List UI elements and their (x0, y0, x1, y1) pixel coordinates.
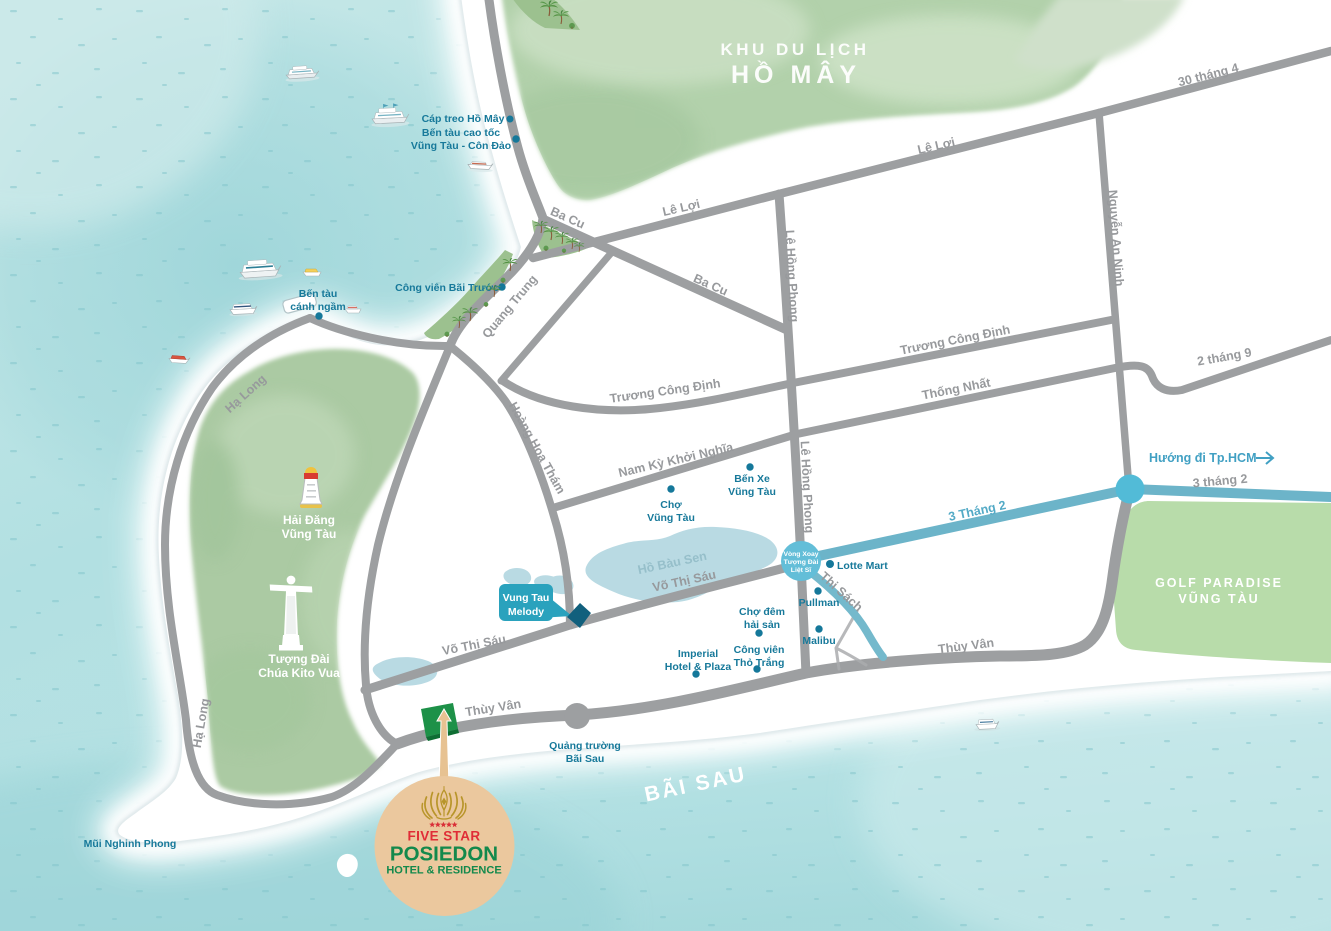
svg-text:HỒ MÂY: HỒ MÂY (731, 59, 861, 89)
svg-text:Pullman: Pullman (799, 597, 840, 609)
svg-text:Bến Xe: Bến Xe (734, 473, 770, 485)
svg-text:Tượng Đài: Tượng Đài (268, 652, 329, 666)
svg-text:Hải Đăng: Hải Đăng (283, 513, 335, 527)
svg-text:Bến tàu cao tốc: Bến tàu cao tốc (422, 127, 500, 139)
svg-text:HOTEL & RESIDENCE: HOTEL & RESIDENCE (386, 865, 501, 877)
svg-text:Bãi Sau: Bãi Sau (566, 753, 605, 765)
svg-text:Imperial: Imperial (678, 648, 718, 660)
svg-text:Công viên: Công viên (734, 644, 785, 656)
svg-text:Vũng Tàu: Vũng Tàu (282, 527, 337, 541)
svg-text:Malibu: Malibu (802, 635, 835, 647)
svg-text:Mũi Nghinh Phong: Mũi Nghinh Phong (84, 838, 177, 850)
svg-text:VŨNG TÀU: VŨNG TÀU (1178, 591, 1259, 606)
svg-text:Vòng Xoay: Vòng Xoay (783, 551, 818, 558)
svg-text:hải sản: hải sản (744, 619, 780, 631)
svg-text:Tượng Đài: Tượng Đài (784, 559, 819, 566)
svg-text:Quảng trường: Quảng trường (549, 740, 621, 752)
svg-text:Vũng Tàu: Vũng Tàu (647, 512, 695, 524)
svg-text:GOLF PARADISE: GOLF PARADISE (1155, 576, 1283, 590)
svg-text:Vũng Tàu: Vũng Tàu (728, 486, 776, 498)
svg-text:Chúa Kito Vua: Chúa Kito Vua (258, 666, 340, 680)
svg-text:Công viên Bãi Trước: Công viên Bãi Trước (395, 282, 499, 294)
svg-text:Liệt Sĩ: Liệt Sĩ (791, 567, 813, 574)
svg-text:Vung Tau: Vung Tau (503, 592, 550, 604)
svg-text:Bến tàu: Bến tàu (299, 288, 338, 300)
svg-text:Chợ: Chợ (660, 499, 682, 511)
svg-text:cánh ngầm: cánh ngầm (290, 301, 345, 313)
svg-text:Cáp treo Hồ Mây: Cáp treo Hồ Mây (422, 113, 505, 125)
svg-text:FIVE STAR: FIVE STAR (407, 829, 480, 844)
svg-text:Lotte Mart: Lotte Mart (837, 560, 888, 572)
svg-text:Chợ đêm: Chợ đêm (739, 606, 785, 618)
svg-text:KHU DU LỊCH: KHU DU LỊCH (721, 40, 870, 59)
svg-text:POSIEDON: POSIEDON (390, 843, 498, 866)
svg-text:Vũng Tàu - Côn Đảo: Vũng Tàu - Côn Đảo (411, 140, 511, 152)
svg-text:Melody: Melody (508, 606, 544, 618)
svg-text:Hướng đi Tp.HCM: Hướng đi Tp.HCM (1149, 451, 1257, 465)
